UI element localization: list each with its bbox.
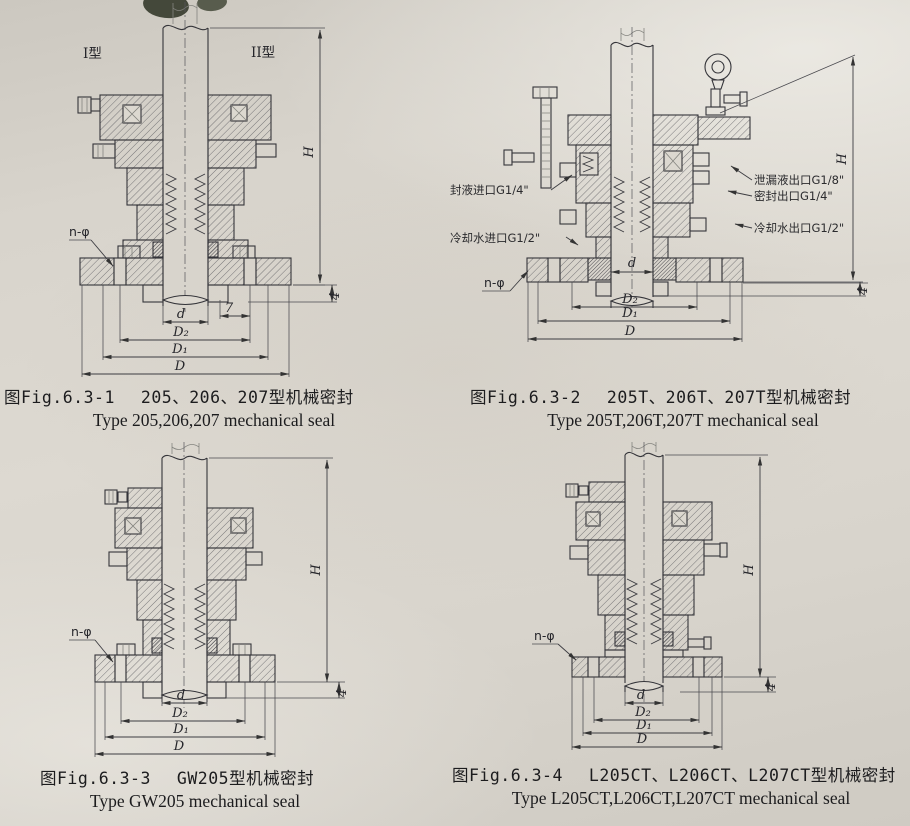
dim-label-d: d	[177, 688, 185, 703]
figure-4-drawing: H 4 d D₂ D₁ D n-φ	[520, 440, 820, 780]
dim-label-D: D	[624, 324, 636, 339]
scanned-page: H 4 d 7 D₂ D₁ D n-φ I型 II型	[0, 0, 910, 826]
figure-2-title-en: Type 205T,206T,207T mechanical seal	[458, 410, 908, 431]
figure-1-title-zh: 205、206、207型机械密封	[141, 388, 354, 407]
flange	[572, 657, 722, 677]
dim-label-D1: D₁	[621, 306, 638, 321]
bolt-hole-label: n-φ	[71, 624, 92, 639]
figure-2-title-zh: 205T、206T、207T型机械密封	[607, 388, 851, 407]
figure-4-title-zh: L205CT、L206CT、L207CT型机械密封	[589, 766, 896, 785]
figure-2-drawing: 封液进口G1/4" 冷却水进口G1/2" 泄漏液出口G1/8" 密封出口G1/4…	[448, 25, 910, 390]
seal-housing	[105, 488, 262, 655]
dim-label-d: d	[177, 307, 185, 322]
dim-label-D2: D₂	[621, 292, 638, 307]
shaft	[162, 442, 207, 708]
figure-3-caption: 图Fig.6.3-3GW205型机械密封 Type GW205 mechanic…	[40, 765, 350, 812]
figure-1-number: 图Fig.6.3-1	[4, 388, 115, 407]
figure-3-title-en: Type GW205 mechanical seal	[40, 791, 350, 812]
seal-outlet-label: 密封出口G1/4"	[754, 189, 833, 203]
dim-label-H: H	[309, 564, 324, 577]
figure-2-caption: 图Fig.6.3-2205T、206T、207T型机械密封 Type 205T,…	[458, 384, 908, 431]
flange	[527, 258, 868, 296]
seal-liquid-inlet-label: 封液进口G1/4"	[450, 183, 529, 197]
dim-label-D: D	[174, 359, 186, 374]
bolt-hole-label: n-φ	[484, 275, 505, 290]
figure-2-caption-zh: 图Fig.6.3-2205T、206T、207T型机械密封	[458, 384, 908, 408]
figure-2-number: 图Fig.6.3-2	[470, 388, 581, 407]
cooling-water-outlet-label: 冷却水出口G1/2"	[754, 221, 844, 235]
figure-3-title-zh: GW205型机械密封	[177, 769, 314, 788]
dim-label-d: d	[637, 688, 645, 703]
dim-label-4: 4	[335, 689, 350, 698]
bolt-hole-label: n-φ	[69, 224, 90, 239]
dim-label-4: 4	[856, 287, 871, 296]
dim-label-D: D	[636, 732, 648, 747]
dim-label-H: H	[302, 146, 317, 159]
figure-3-drawing: H 4 d D₂ D₁ D n-φ	[55, 440, 355, 780]
figure-1-caption: 图Fig.6.3-1205、206、207型机械密封 Type 205,206,…	[4, 384, 424, 431]
dim-label-D1: D₁	[635, 718, 652, 733]
type-II-label: II型	[251, 45, 275, 61]
type-I-label: I型	[83, 46, 102, 62]
bolt-hole-label: n-φ	[534, 628, 555, 643]
shaft	[163, 2, 208, 312]
shaft	[625, 442, 663, 702]
figure-4-caption: 图Fig.6.3-4L205CT、L206CT、L207CT型机械密封 Type…	[452, 762, 910, 809]
figure-1-title-en: Type 205,206,207 mechanical seal	[4, 410, 424, 431]
figure-3-number: 图Fig.6.3-3	[40, 769, 151, 788]
figure-4-title-en: Type L205CT,L206CT,L207CT mechanical sea…	[452, 788, 910, 809]
eyebolt	[705, 54, 731, 115]
seal-housing	[566, 482, 727, 657]
dimensions: H 4 d 7 D₂ D₁ D n-φ I型 II型	[69, 28, 343, 377]
dim-label-7: 7	[225, 301, 234, 316]
dim-label-H: H	[742, 564, 757, 577]
figure-3-caption-zh: 图Fig.6.3-3GW205型机械密封	[40, 765, 350, 789]
cooling-water-inlet-label: 冷却水进口G1/2"	[450, 231, 540, 245]
figure-4-caption-zh: 图Fig.6.3-4L205CT、L206CT、L207CT型机械密封	[452, 762, 910, 786]
dimensions: H 4 d D₂ D₁ D n-φ	[532, 455, 779, 750]
figure-1-drawing: H 4 d 7 D₂ D₁ D n-φ I型 II型	[25, 0, 355, 385]
dim-label-4: 4	[328, 292, 343, 301]
dim-label-D2: D₂	[171, 706, 188, 721]
dim-label-D: D	[173, 739, 185, 754]
leakage-outlet-label: 泄漏液出口G1/8"	[754, 173, 844, 187]
dim-label-D1: D₁	[172, 722, 189, 737]
figure-1-caption-zh: 图Fig.6.3-1205、206、207型机械密封	[4, 384, 424, 408]
dim-label-d: d	[628, 256, 636, 271]
dim-label-D1: D₁	[171, 342, 188, 357]
figure-4-number: 图Fig.6.3-4	[452, 766, 563, 785]
seal-housing	[504, 87, 750, 258]
dim-label-D2: D₂	[172, 325, 189, 340]
seal-housing	[78, 95, 276, 258]
dim-label-H: H	[835, 153, 850, 166]
dim-label-4: 4	[764, 683, 779, 692]
